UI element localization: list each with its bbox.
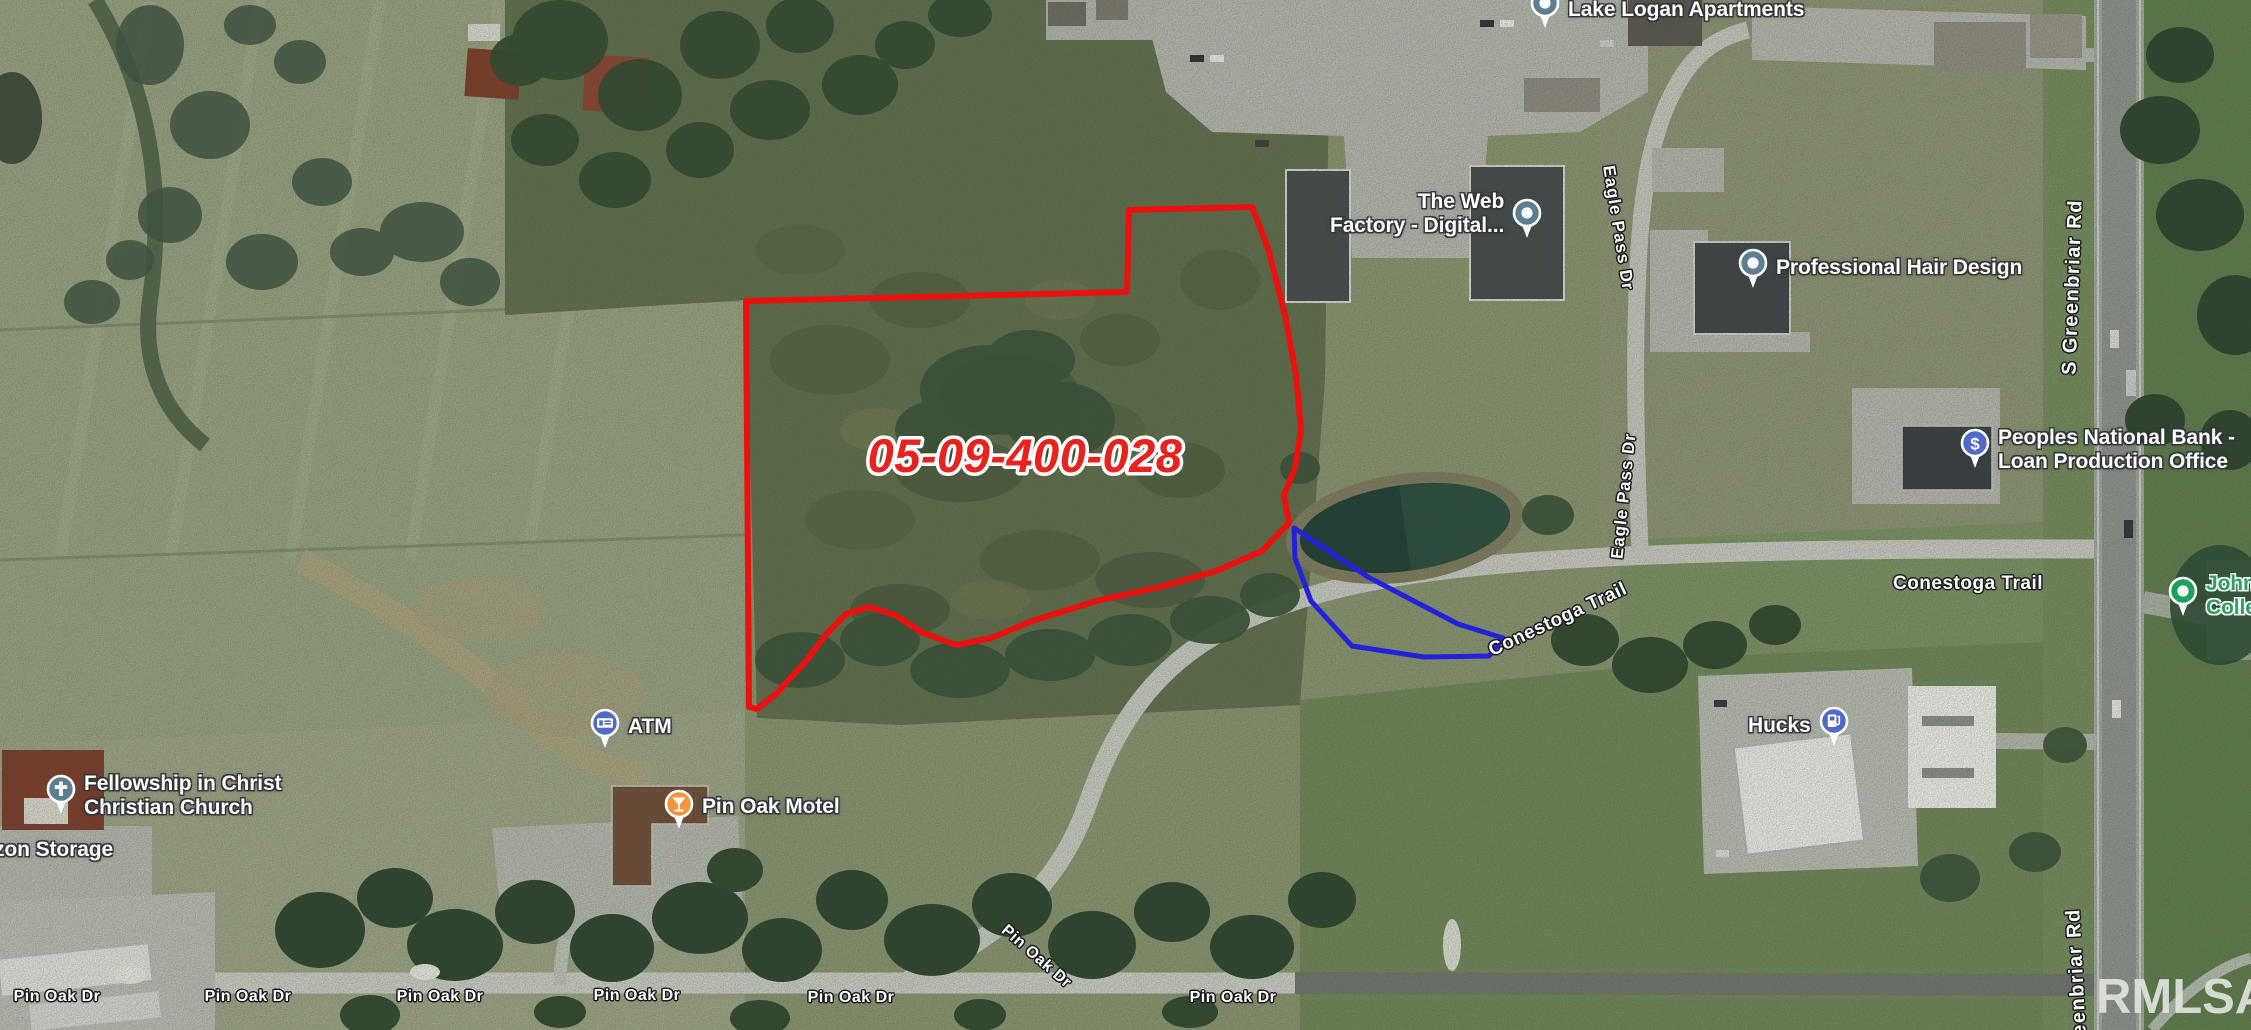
atm-pin-icon — [588, 708, 622, 750]
poi-label-text-the-web-factory: The WebFactory - Digital... — [1330, 190, 1504, 237]
road-label-pin-oak-dr-2: Pin Oak Dr — [205, 988, 292, 1006]
poi-storage: zon Storage — [0, 838, 113, 862]
gas-pin-icon — [1817, 706, 1851, 748]
road-label-conestoga-trail-east: Conestoga Trail — [1893, 573, 2043, 595]
parcel-id-label: 05-09-400-028 — [868, 429, 1183, 482]
place-pin-icon — [1528, 0, 1562, 30]
poi-peoples-national-bank: $Peoples National Bank -Loan Production … — [1958, 426, 2235, 473]
poi-john-a-logan-college: JohnColle — [2166, 574, 2251, 619]
parcel-outline-blue — [1294, 528, 1503, 657]
satellite-map-viewport[interactable]: 05-09-400-028 Lake Logan ApartmentsThe W… — [0, 0, 2251, 1030]
poi-label-text-atm: ATM — [628, 715, 672, 739]
poi-label-text-lake-logan-apartments: Lake Logan Apartments — [1568, 0, 1804, 22]
parcel-overlay: 05-09-400-028 — [0, 0, 2251, 1030]
poi-label-text-storage: zon Storage — [0, 838, 113, 862]
dot-pin-icon — [2166, 576, 2200, 618]
poi-atm: ATM — [588, 708, 672, 750]
poi-label-text-john-a-logan-college: JohnColle — [2206, 572, 2251, 619]
poi-pin-oak-motel: Pin Oak Motel — [662, 789, 840, 831]
poi-professional-hair-design: Professional Hair Design — [1736, 248, 2022, 290]
road-label-pin-oak-dr-1: Pin Oak Dr — [14, 988, 101, 1006]
poi-the-web-factory: The WebFactory - Digital... — [1330, 190, 1544, 240]
poi-label-text-hucks: Hucks — [1748, 714, 1811, 738]
poi-hucks: Hucks — [1748, 706, 1851, 748]
svg-text:$: $ — [1970, 435, 1980, 454]
road-label-pin-oak-dr-7: Pin Oak Dr — [1190, 989, 1277, 1007]
road-label-pin-oak-dr-3: Pin Oak Dr — [397, 988, 484, 1006]
poi-fellowship-church: Fellowship in ChristChristian Church — [44, 772, 282, 819]
place-pin-icon — [1736, 248, 1770, 290]
road-label-pin-oak-dr-5: Pin Oak Dr — [808, 989, 895, 1007]
poi-lake-logan-apartments: Lake Logan Apartments — [1528, 0, 1804, 30]
poi-label-text-fellowship-church: Fellowship in ChristChristian Church — [84, 772, 282, 819]
rmlsa-watermark: RMLSA — [2096, 969, 2251, 1025]
road-label-pin-oak-dr-4: Pin Oak Dr — [594, 987, 681, 1005]
dollar-pin-icon: $ — [1958, 428, 1992, 470]
cross-pin-icon — [44, 774, 78, 816]
poi-label-text-professional-hair-design: Professional Hair Design — [1776, 256, 2022, 280]
place-pin-icon — [1510, 198, 1544, 240]
poi-label-text-peoples-national-bank: Peoples National Bank -Loan Production O… — [1998, 426, 2235, 473]
martini-pin-icon — [662, 789, 696, 831]
poi-label-text-pin-oak-motel: Pin Oak Motel — [702, 795, 840, 819]
